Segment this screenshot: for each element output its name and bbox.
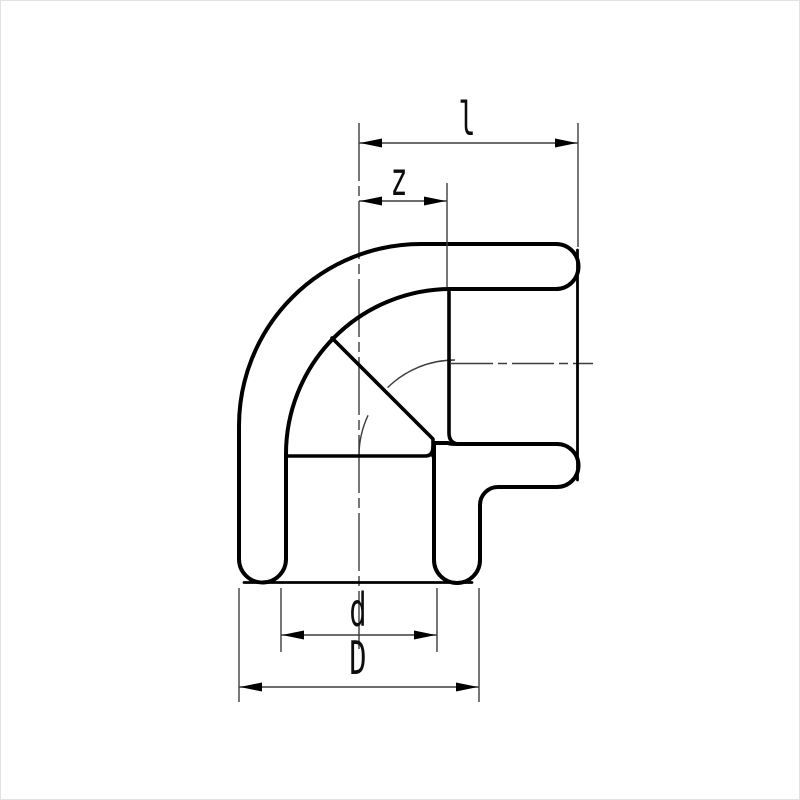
arrowhead-right: [414, 631, 436, 640]
bottom-socket-shoulder: [288, 447, 433, 456]
arrowhead-right: [456, 683, 478, 692]
dimension-label-l: l: [458, 93, 475, 147]
dimension-label-d: d: [349, 584, 366, 638]
arrowhead-right: [555, 139, 577, 148]
arrowhead-left: [360, 139, 382, 148]
dimension-label-z: z: [390, 153, 407, 207]
dimension-label-D: D: [349, 632, 366, 686]
drawing-canvas: l z d D: [0, 0, 800, 800]
dimension-z: z: [359, 153, 447, 287]
elbow-fitting-drawing: l z d D: [1, 1, 800, 800]
arrowhead-left: [282, 631, 304, 640]
right-socket-shoulder: [449, 292, 458, 444]
inner-corner-wall: [434, 443, 579, 583]
arrowhead-left: [240, 683, 262, 692]
arrowhead-right: [424, 197, 446, 206]
fitting-body: [239, 244, 579, 583]
miter-seam-line: [332, 338, 433, 456]
arrowhead-left: [360, 197, 382, 206]
